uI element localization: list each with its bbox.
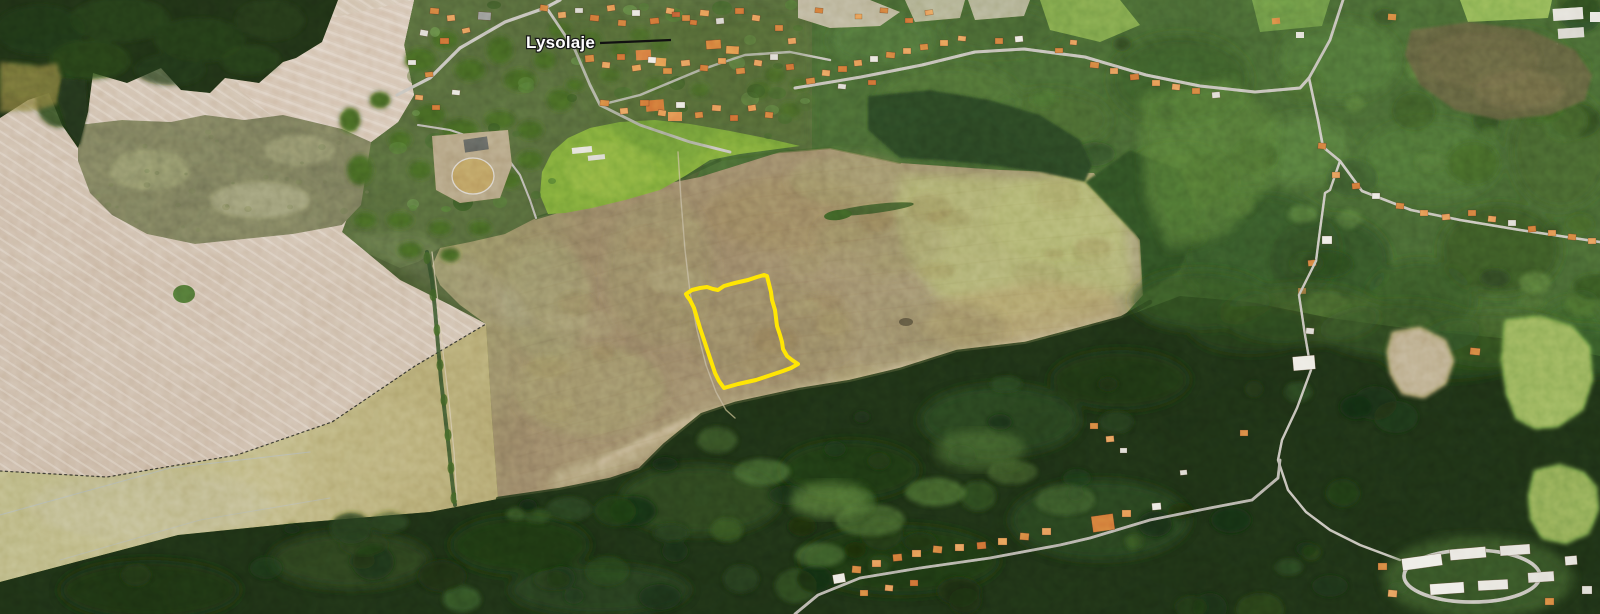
svg-text:Lysolaje: Lysolaje bbox=[526, 33, 595, 52]
